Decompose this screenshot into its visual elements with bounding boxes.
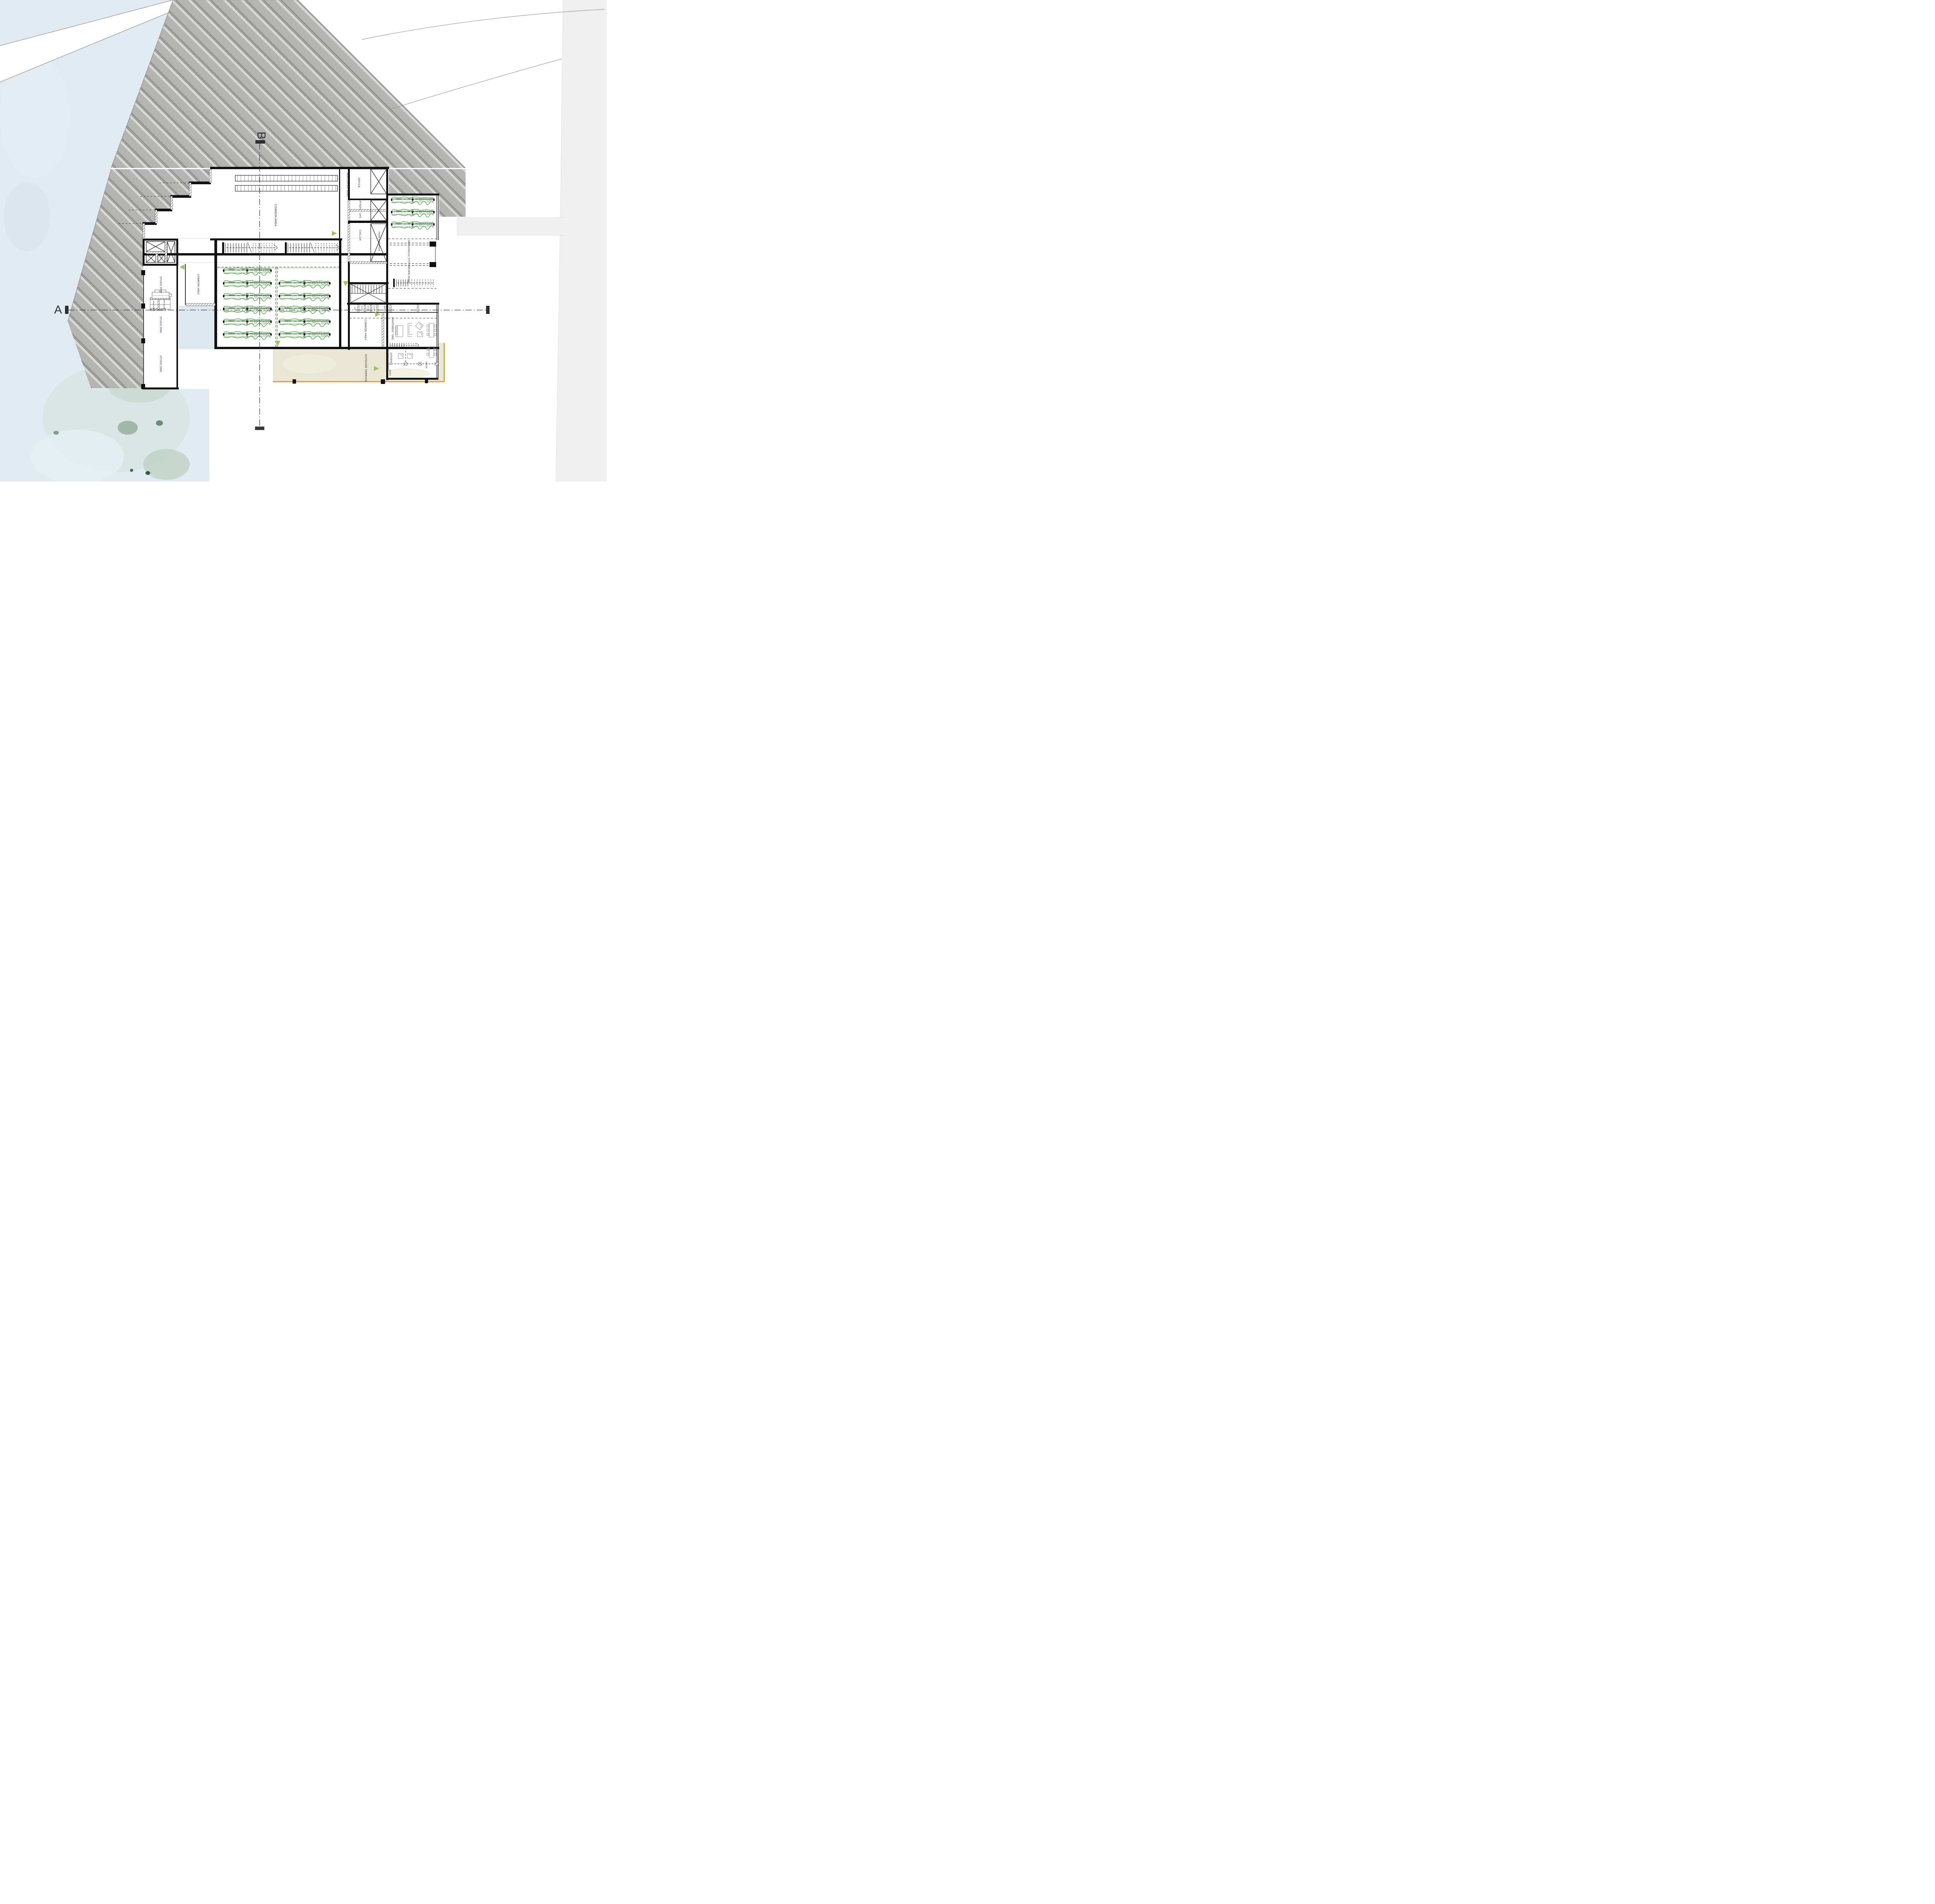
label-ups: UPS [358, 213, 361, 218]
label-common-area-left: COMMON AREA [197, 274, 199, 295]
label-battery: BATTERY [358, 199, 361, 210]
road-curve-lower [390, 59, 562, 109]
label-prep-pod: PREP [163, 300, 165, 305]
label-kitch: KITCH. [425, 362, 427, 369]
label-studio-1: STUDIO 35M2 [159, 276, 162, 293]
label-mechanical-system: MECHANICAL SYSTEM [407, 240, 410, 268]
label-apartment-60-2: 2STORIES [389, 353, 392, 365]
label-data-center: DATA CENTER 165M2 [346, 173, 348, 197]
label-bath-60: BATH [388, 370, 390, 376]
label-bath-row: BATH [383, 306, 385, 312]
label-studio-3: STUDIO 28M2 [159, 355, 162, 372]
label-office: OFFICE [357, 178, 360, 188]
floor-plan-canvas: DATA CENTER 165M2OFFICECOMMON AREABATTER… [0, 0, 607, 482]
label-section-b: B [254, 132, 268, 139]
label-wc-row: WC [354, 307, 356, 310]
label-stor-2: STOR. [367, 305, 369, 312]
label-common-area-right: COMMON AREA [364, 319, 366, 340]
label-apartment-70: APARTMENT 70M2 [391, 317, 394, 340]
plan-drawing [0, 0, 607, 482]
label-stor-3: STOR. [373, 305, 375, 312]
label-stor-1: STOR. [361, 305, 363, 312]
water-notch [179, 306, 214, 349]
label-outdoor-terrace: OUTDOOR TERRACE [364, 354, 367, 382]
label-chiller: CHILLER [358, 230, 361, 241]
label-shower-pod: SHOWER [152, 303, 154, 312]
label-studio-2: STUDIO 35M2 [159, 316, 162, 333]
label-farm-elevator: FARM ELEVATOR [378, 232, 380, 251]
label-farm-454: FARM 454M2 [407, 268, 410, 284]
label-apartment-60: APARTMENT 60M2 [386, 348, 389, 370]
label-section-a: A [54, 303, 62, 317]
label-sink-pod: SINK [163, 305, 165, 309]
label-common-area-top: COMMON AREA [274, 204, 277, 226]
